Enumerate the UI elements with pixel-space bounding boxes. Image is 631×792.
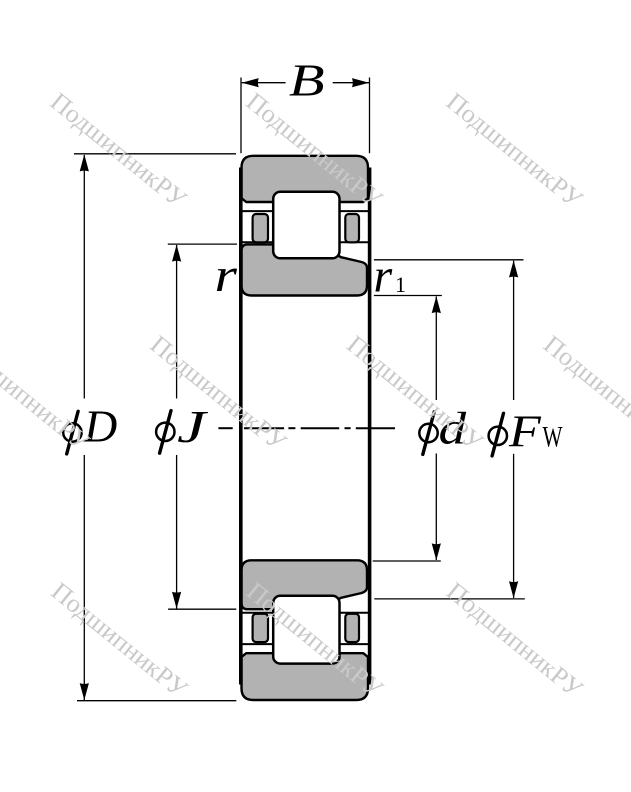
svg-text:F: F — [508, 405, 542, 457]
svg-text:r: r — [374, 250, 393, 303]
svg-text:W: W — [543, 420, 563, 453]
svg-text:D: D — [83, 401, 117, 452]
svg-text:r: r — [215, 249, 238, 302]
svg-text:J: J — [177, 402, 209, 453]
svg-text:B: B — [289, 57, 325, 106]
svg-text:1: 1 — [395, 272, 406, 297]
